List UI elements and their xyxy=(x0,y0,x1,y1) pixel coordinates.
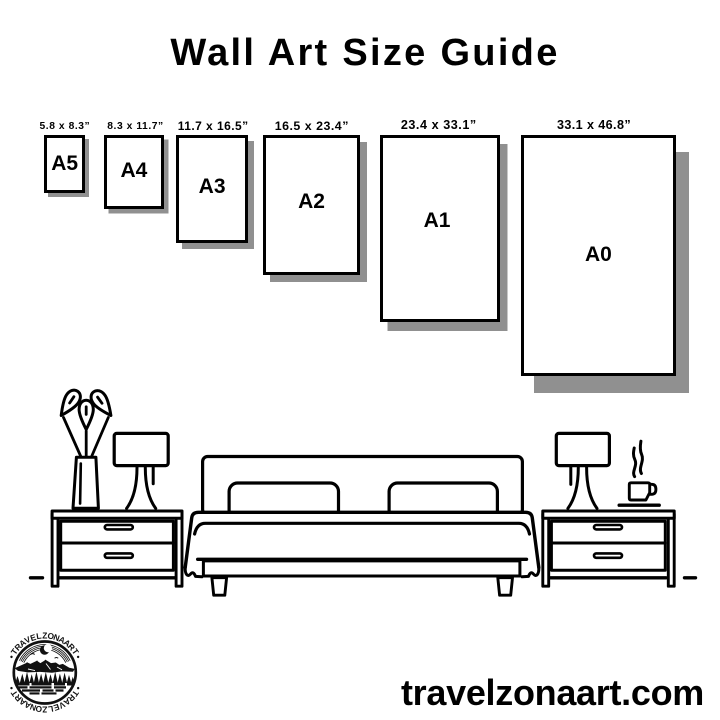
svg-text:L: L xyxy=(35,631,42,642)
